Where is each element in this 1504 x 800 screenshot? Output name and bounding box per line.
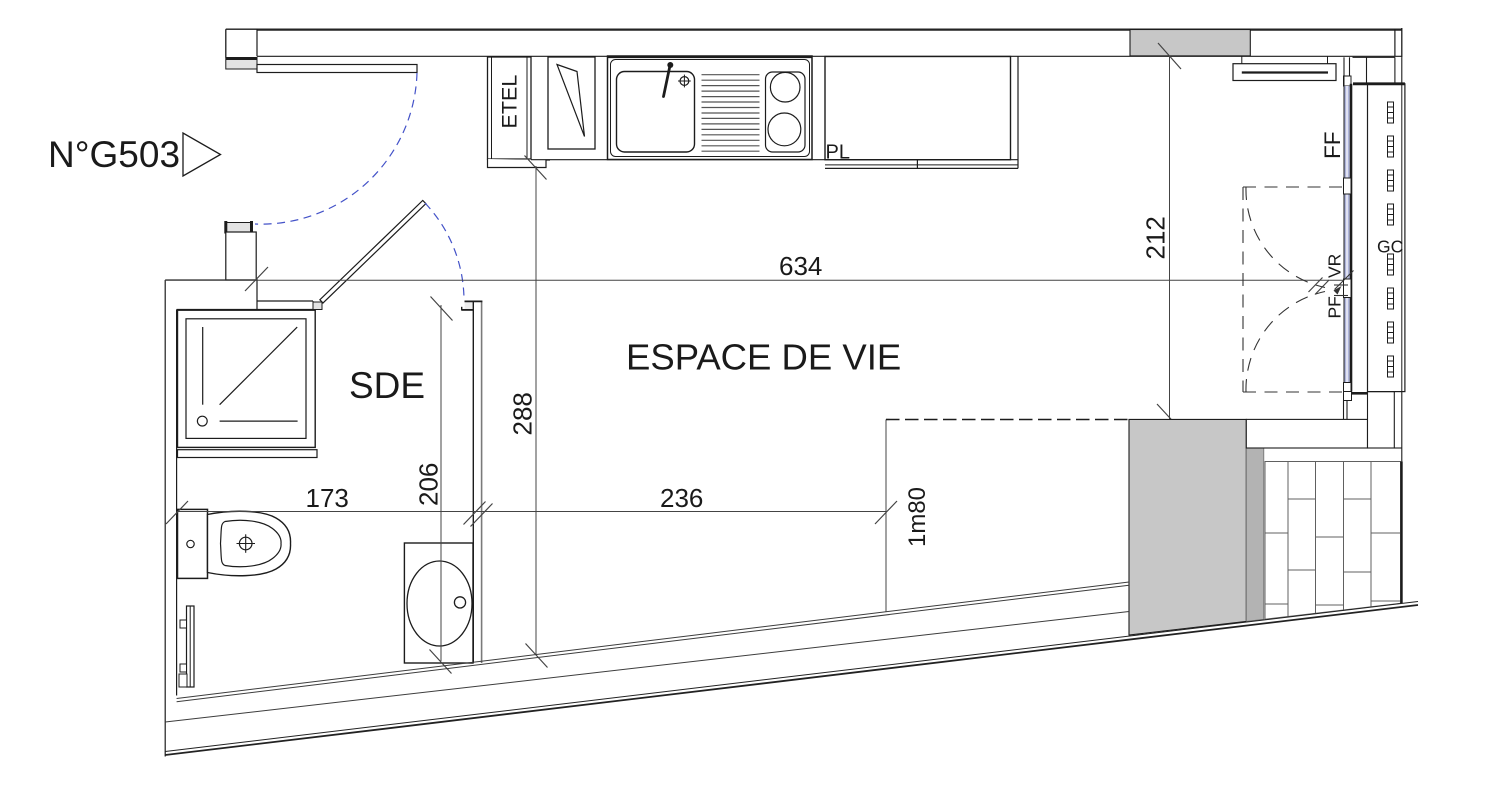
svg-text:173: 173 <box>306 483 349 513</box>
svg-text:N°G503: N°G503 <box>48 134 180 175</box>
svg-text:288: 288 <box>508 392 538 435</box>
svg-text:236: 236 <box>660 483 703 513</box>
svg-text:GC: GC <box>1377 237 1403 257</box>
svg-text:FF: FF <box>1320 132 1345 160</box>
svg-text:206: 206 <box>414 463 444 506</box>
svg-text:ETEL: ETEL <box>498 75 522 129</box>
svg-text:PL: PL <box>826 142 850 164</box>
svg-text:212: 212 <box>1141 216 1171 259</box>
svg-text:VR: VR <box>1325 254 1345 278</box>
svg-text:634: 634 <box>779 251 822 281</box>
svg-text:PF: PF <box>1325 296 1345 318</box>
svg-text:SDE: SDE <box>349 365 425 406</box>
svg-text:ESPACE DE VIE: ESPACE DE VIE <box>626 337 901 378</box>
svg-text:1m80: 1m80 <box>904 487 931 547</box>
